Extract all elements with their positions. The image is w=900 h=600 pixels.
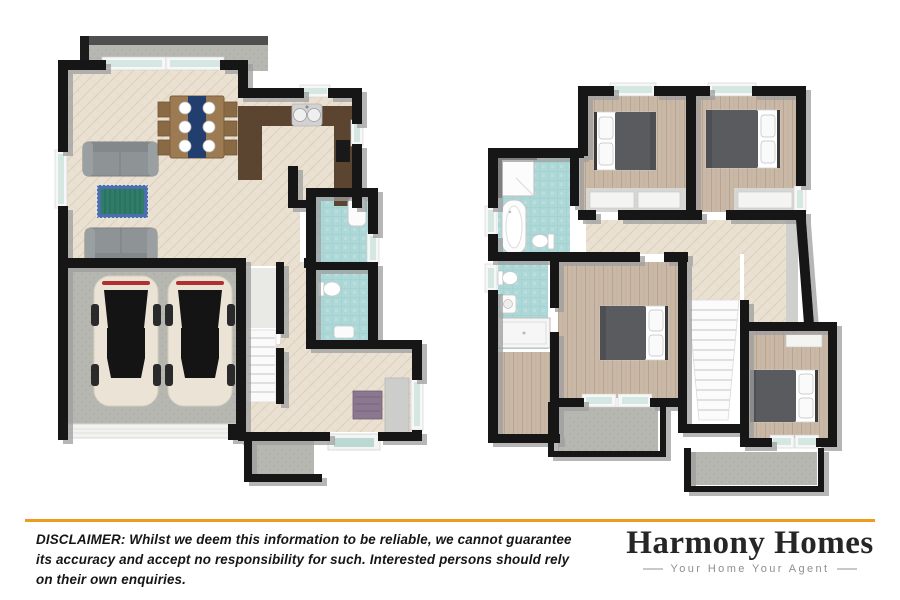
- double-bed: [594, 112, 656, 170]
- double-bed: [706, 110, 780, 168]
- staircase: [246, 330, 276, 402]
- flyer-page: DISCLAIMER: Whilst we deem this informat…: [0, 0, 900, 600]
- ground-floor-plan: [55, 36, 423, 482]
- kitchen-sink: [292, 104, 322, 126]
- window: [485, 264, 497, 292]
- shower: [498, 318, 550, 348]
- window: [102, 57, 166, 70]
- disclaimer-line: DISCLAIMER: Whilst we deem this informat…: [36, 530, 572, 550]
- garage-door: [66, 424, 236, 438]
- upper-deck: [691, 452, 817, 485]
- brand-name: Harmony Homes: [620, 526, 880, 561]
- basin: [334, 326, 354, 338]
- front-door: [328, 434, 380, 450]
- window: [367, 232, 379, 264]
- toilet: [498, 271, 518, 285]
- bathtub: [502, 200, 526, 254]
- window: [55, 150, 67, 208]
- window: [485, 206, 497, 236]
- accent-divider: [25, 519, 875, 522]
- storage-cabinet: [385, 378, 409, 434]
- entry-console: [353, 391, 382, 419]
- car: [165, 276, 235, 406]
- window: [795, 435, 819, 448]
- window: [610, 83, 656, 96]
- window: [582, 394, 616, 407]
- sofa: [83, 142, 158, 176]
- window: [708, 83, 756, 96]
- disclaimer-line: on their own enquiries.: [36, 570, 572, 590]
- double-bed: [750, 370, 818, 422]
- cooktop: [336, 140, 350, 162]
- disclaimer-line: its accuracy and accept no responsibilit…: [36, 550, 572, 570]
- double-bed: [600, 306, 668, 360]
- brand-tagline: Your Home Your Agent: [620, 563, 880, 575]
- sofa: [85, 228, 157, 263]
- hallway-floor: [586, 220, 794, 254]
- toilet: [318, 282, 341, 296]
- window: [411, 378, 423, 430]
- balcony: [558, 407, 658, 451]
- staircase: [686, 300, 740, 420]
- void-strip: [786, 220, 798, 322]
- floor-plan-canvas: [0, 0, 900, 518]
- window: [300, 85, 330, 97]
- hallway-floor: [687, 254, 740, 300]
- wardrobe-shelf: [786, 334, 822, 347]
- corner-shower: [497, 156, 537, 198]
- vanity-sink: [500, 295, 516, 313]
- window: [618, 394, 652, 407]
- porch: [250, 440, 314, 476]
- window: [770, 435, 794, 448]
- brand-logo: Harmony Homes Your Home Your Agent: [620, 526, 880, 575]
- window: [166, 57, 224, 70]
- upper-floor-plan: [485, 83, 837, 492]
- disclaimer-text: DISCLAIMER: Whilst we deem this informat…: [36, 530, 572, 590]
- stair-closet: [246, 268, 276, 328]
- window: [794, 186, 806, 212]
- wardrobe-shelf: [586, 188, 686, 212]
- car: [91, 276, 161, 406]
- wardrobe-shelf: [734, 188, 796, 212]
- walkin-robe-floor: [498, 352, 550, 434]
- area-rug: [97, 185, 148, 218]
- dining-table: [158, 96, 237, 158]
